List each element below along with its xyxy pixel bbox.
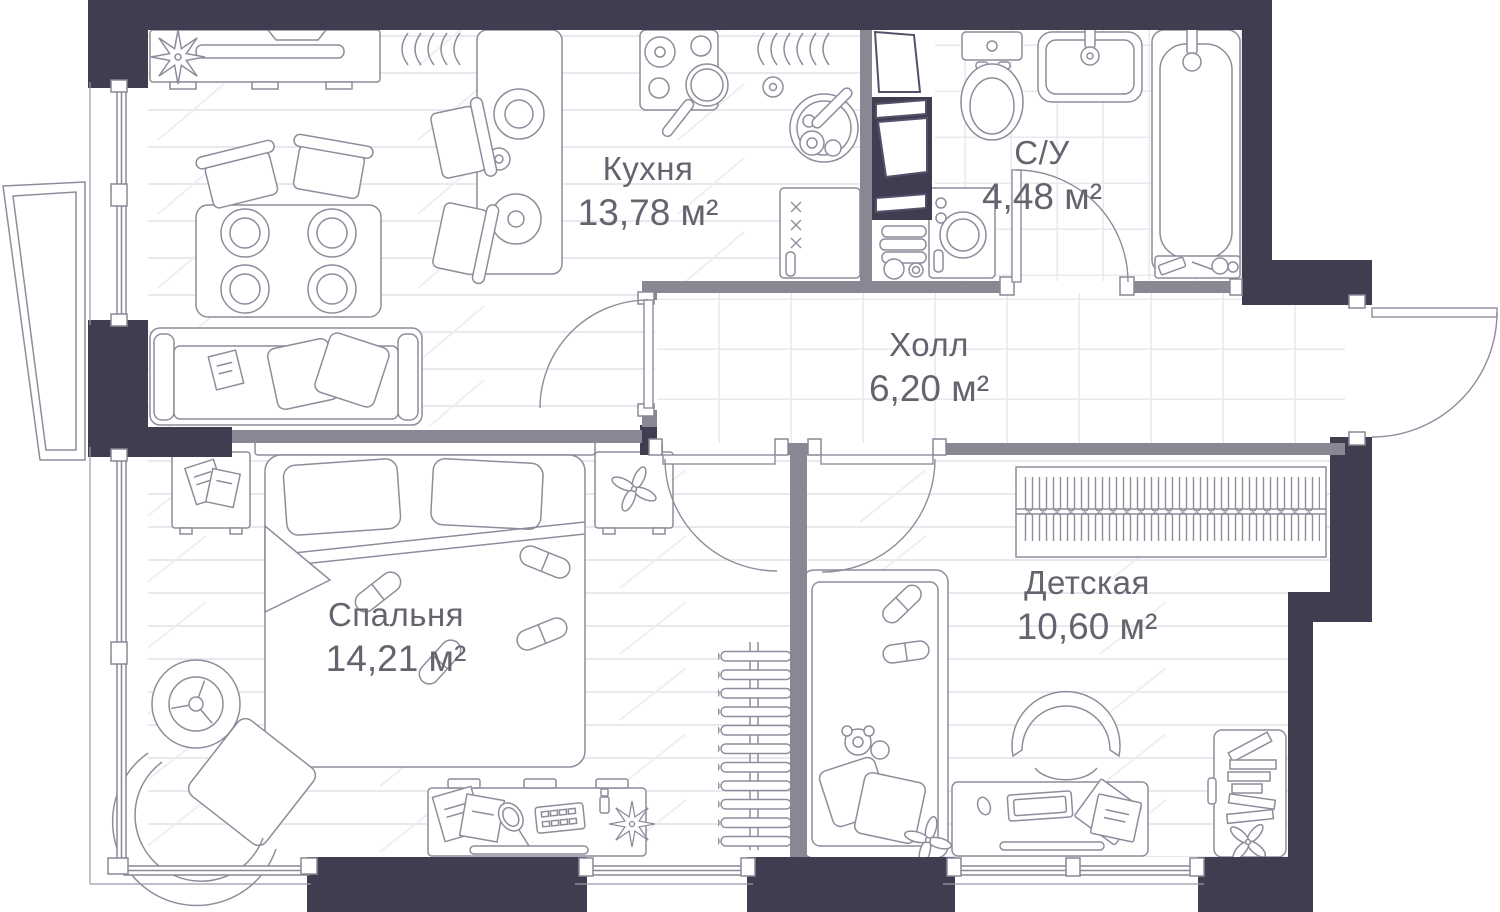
ladder-rack [718, 642, 790, 850]
room-label-hall: Холл 6,20 м² [869, 328, 989, 407]
toilet [961, 32, 1023, 140]
plant-icon [151, 30, 205, 84]
room-area: 14,21 м² [326, 640, 467, 677]
room-name: Кухня [578, 152, 719, 185]
room-area: 10,60 м² [1017, 608, 1158, 645]
room-name: Детская [1017, 566, 1158, 599]
room-label-kitchen: Кухня 13,78 м² [578, 152, 719, 231]
kitchen-faucet-icon [763, 77, 783, 97]
bath-shelf [1155, 256, 1240, 278]
plant-icon [609, 801, 655, 847]
floor-plan: Кухня 13,78 м² С/У 4,48 м² Холл 6,20 м² … [0, 0, 1500, 912]
room-name: Спальня [326, 598, 467, 631]
round-side-table [152, 660, 240, 748]
room-label-children: Детская 10,60 м² [1017, 566, 1158, 645]
sofa [150, 328, 422, 425]
bathroom-sink [1038, 24, 1142, 102]
room-area: 6,20 м² [869, 370, 989, 407]
hall-floor [657, 293, 1345, 443]
window [124, 866, 309, 875]
wardrobe [1016, 467, 1326, 557]
room-area: 13,78 м² [578, 194, 719, 231]
desk [952, 779, 1148, 856]
bathtub [1152, 22, 1240, 272]
dresser-vanity [428, 779, 655, 856]
towel-shelf [880, 226, 926, 279]
room-name: С/У [982, 136, 1102, 169]
room-area: 4,48 м² [982, 178, 1102, 215]
dining-table [196, 205, 381, 317]
nightstand [172, 452, 250, 534]
room-label-bathroom: С/У 4,48 м² [982, 136, 1102, 215]
bed-single [802, 570, 948, 858]
window [587, 866, 747, 875]
oven-cabinet [780, 188, 860, 278]
room-name: Холл [869, 328, 989, 361]
room-label-bedroom: Спальня 14,21 м² [326, 598, 467, 677]
bookshelf [1208, 730, 1286, 873]
floor-plan-drawing [0, 0, 1500, 912]
